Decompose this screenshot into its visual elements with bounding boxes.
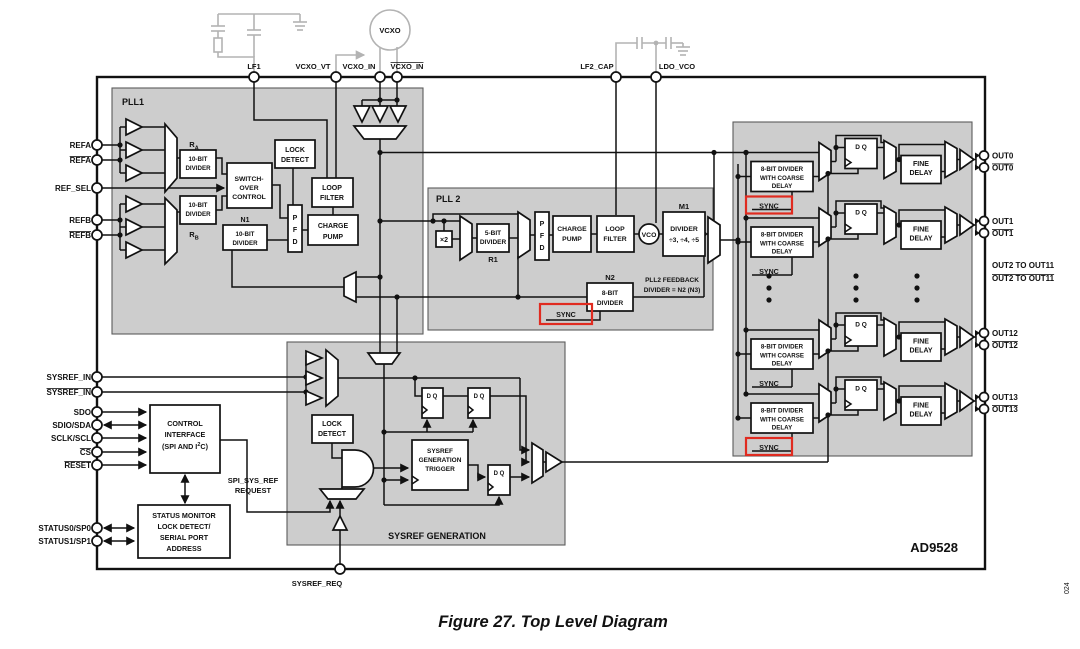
left-pin-labels: REFA REFA REF_SEL REFB REFB SYSREF_IN SY… xyxy=(38,141,91,546)
svg-text:D Q: D Q xyxy=(855,386,867,393)
x2-label: ×2 xyxy=(440,237,448,244)
vcxo-in-b-pin xyxy=(392,72,402,82)
svg-text:10-BIT: 10-BIT xyxy=(189,202,208,209)
svg-text:DELAY: DELAY xyxy=(909,412,932,419)
pll1-title: PLL1 xyxy=(122,97,144,107)
refb-b-pin xyxy=(92,230,102,240)
vcxo-vt-pin xyxy=(331,72,341,82)
svg-text:SPI_SYS_REF: SPI_SYS_REF xyxy=(228,476,279,485)
svg-text:DETECT: DETECT xyxy=(318,431,347,438)
svg-text:OVER: OVER xyxy=(239,185,258,192)
vcxo-mux xyxy=(354,126,406,139)
refb-pin xyxy=(92,215,102,225)
rb-divider-box xyxy=(180,196,216,224)
spi-i2c-line: (SPI AND I2C) xyxy=(162,442,209,451)
svg-text:DELAY: DELAY xyxy=(909,236,932,243)
svg-text:8-BIT: 8-BIT xyxy=(602,290,618,297)
figure-caption: Figure 27. Top Level Diagram xyxy=(438,613,668,631)
and-gate xyxy=(342,450,374,487)
m1-label: M1 xyxy=(679,202,689,211)
svg-text:F: F xyxy=(540,233,545,240)
svg-text:SWITCH-: SWITCH- xyxy=(234,176,263,183)
svg-text:FINE: FINE xyxy=(913,339,929,346)
n1-source-mux xyxy=(344,272,356,302)
sysref-req-pin xyxy=(335,564,345,574)
svg-text:8-BIT DIVIDER: 8-BIT DIVIDER xyxy=(761,344,804,351)
external-ldo-caps xyxy=(616,37,690,77)
reset-label: RESET xyxy=(64,461,91,470)
lf1-pin xyxy=(249,72,259,82)
svg-text:DELAY: DELAY xyxy=(772,425,793,432)
svg-text:DIVIDER: DIVIDER xyxy=(185,211,211,218)
sysref-in-label: SYSREF_IN xyxy=(47,373,92,382)
vcxo-in-b-label: VCXO_IN xyxy=(391,62,424,71)
svg-text:DIVIDER: DIVIDER xyxy=(597,300,624,307)
status1-pin xyxy=(92,536,102,546)
pll2-sync-label: SYNC xyxy=(556,312,575,319)
vcxo-vt-label: VCXO_VT xyxy=(295,62,330,71)
ldo-vco-pin xyxy=(651,72,661,82)
svg-text:WITH COARSE: WITH COARSE xyxy=(760,241,804,248)
sysref-output-mux xyxy=(532,443,543,483)
out13-label: OUT13 xyxy=(992,393,1018,402)
lf1-label: LF1 xyxy=(247,62,260,71)
refb-b-label: REFB xyxy=(69,231,91,240)
svg-text:CONTROL: CONTROL xyxy=(232,194,266,201)
sdo-pin xyxy=(92,407,102,417)
status0-label: STATUS0/SP0 xyxy=(38,524,91,533)
sclk-pin xyxy=(92,433,102,443)
svg-text:SYSREF: SYSREF xyxy=(427,448,453,455)
refa-b-pin xyxy=(92,155,102,165)
svg-text:DELAY: DELAY xyxy=(772,249,793,256)
svg-text:D: D xyxy=(292,239,297,246)
svg-text:8-BIT DIVIDER: 8-BIT DIVIDER xyxy=(761,232,804,239)
pll2-title: PLL 2 xyxy=(436,194,460,204)
svg-text:LOOP: LOOP xyxy=(322,185,342,192)
refa-label: REFA xyxy=(70,141,92,150)
pll1-loop-filter-box xyxy=(312,178,353,207)
svg-text:WITH COARSE: WITH COARSE xyxy=(760,175,804,182)
svg-text:FINE: FINE xyxy=(913,227,929,234)
control-interface-box xyxy=(150,405,220,473)
sclk-label: SCLK/SCL xyxy=(51,434,91,443)
pfd-input-mux xyxy=(518,212,530,258)
svg-text:STATUS MONITOR: STATUS MONITOR xyxy=(152,511,216,520)
sysref-input-mux xyxy=(326,350,338,406)
svg-text:D Q: D Q xyxy=(855,322,867,329)
out0-b-label: OUT0 xyxy=(992,164,1014,173)
svg-text:D Q: D Q xyxy=(427,394,438,400)
svg-text:DIVIDER: DIVIDER xyxy=(185,165,211,172)
svg-text:10-BIT: 10-BIT xyxy=(189,156,208,163)
out2-11-b-label: OUT2 TO OUT11 xyxy=(992,274,1055,283)
out0-label: OUT0 xyxy=(992,152,1014,161)
svg-text:TRIGGER: TRIGGER xyxy=(425,466,455,473)
svg-text:DIVIDER: DIVIDER xyxy=(670,226,698,233)
svg-text:ADDRESS: ADDRESS xyxy=(166,544,201,553)
n1-label: N1 xyxy=(241,217,250,224)
svg-text:CHARGE: CHARGE xyxy=(557,226,587,233)
svg-text:PUMP: PUMP xyxy=(562,236,582,243)
svg-text:DELAY: DELAY xyxy=(772,361,793,368)
svg-text:DIVIDER: DIVIDER xyxy=(232,240,258,247)
svg-text:8-BIT DIVIDER: 8-BIT DIVIDER xyxy=(761,408,804,415)
svg-text:FINE: FINE xyxy=(913,403,929,410)
figure-watermark: 024 xyxy=(1064,582,1071,594)
svg-text:D Q: D Q xyxy=(474,394,485,400)
chip-name-label: AD9528 xyxy=(910,540,958,555)
lf2-cap-pin xyxy=(611,72,621,82)
svg-text:SERIAL PORT: SERIAL PORT xyxy=(160,533,209,542)
n2-label: N2 xyxy=(605,273,615,282)
vcxo-in-pin xyxy=(375,72,385,82)
svg-text:SYNC: SYNC xyxy=(759,381,778,388)
refa-pin xyxy=(92,140,102,150)
lf2-cap-label: LF2_CAP xyxy=(580,62,613,71)
pll2-region xyxy=(428,188,713,330)
svg-text:8-BIT DIVIDER: 8-BIT DIVIDER xyxy=(761,166,804,173)
cs-pin xyxy=(92,447,102,457)
svg-text:FILTER: FILTER xyxy=(603,236,626,243)
refb-label: REFB xyxy=(69,216,91,225)
sysref-dq2 xyxy=(468,388,490,418)
vco-label: VCO xyxy=(642,232,657,239)
svg-text:LOCK: LOCK xyxy=(322,421,342,428)
ref-sel-label: REF_SEL xyxy=(55,184,91,193)
sysref-generation-title: SYSREF GENERATION xyxy=(388,531,486,541)
svg-text:DIVIDER = N2 (N3): DIVIDER = N2 (N3) xyxy=(644,287,701,294)
r1-input-mux xyxy=(460,216,472,260)
out13-b-label: OUT13 xyxy=(992,405,1018,414)
pll2-loop-filter-box xyxy=(597,216,634,252)
svg-text:GENERATION: GENERATION xyxy=(419,457,462,464)
status0-pin xyxy=(92,523,102,533)
out12-b-label: OUT12 xyxy=(992,341,1018,350)
svg-text:WITH COARSE: WITH COARSE xyxy=(760,353,804,360)
svg-text:D: D xyxy=(539,245,544,252)
svg-text:CONTROL: CONTROL xyxy=(167,419,203,428)
pll2-charge-pump-box xyxy=(553,216,591,252)
refa-b-label: REFA xyxy=(70,156,92,165)
ldo-vco-label: LDO_VCO xyxy=(659,62,695,71)
svg-text:FILTER: FILTER xyxy=(320,195,344,202)
svg-text:DELAY: DELAY xyxy=(909,170,932,177)
svg-text:5-BIT: 5-BIT xyxy=(485,230,501,237)
svg-text:DIVIDER: DIVIDER xyxy=(480,239,507,246)
svg-text:P: P xyxy=(293,215,298,222)
vcxo-label: VCXO xyxy=(379,26,400,35)
pll2-output-mux xyxy=(708,217,720,263)
svg-text:D Q: D Q xyxy=(494,471,505,477)
svg-text:DELAY: DELAY xyxy=(909,348,932,355)
sysref-in-pin xyxy=(92,372,102,382)
ref-sel-pin xyxy=(92,183,102,193)
request-select-mux xyxy=(320,489,364,499)
svg-text:DETECT: DETECT xyxy=(281,157,310,164)
svg-text:PLL2 FEEDBACK: PLL2 FEEDBACK xyxy=(645,277,699,284)
top-level-diagram: VCXO xyxy=(0,0,1080,649)
refb-mux xyxy=(165,198,177,264)
out1-b-label: OUT1 xyxy=(992,229,1014,238)
sysref-in-b-label: SYSREF_IN xyxy=(47,388,92,397)
svg-text:SYNC: SYNC xyxy=(759,204,778,211)
sysref-req-label: SYSREF_REQ xyxy=(292,579,343,588)
svg-text:DELAY: DELAY xyxy=(772,183,793,190)
vcxo-in-label: VCXO_IN xyxy=(343,62,376,71)
svg-text:D Q: D Q xyxy=(855,210,867,217)
cs-label: CS xyxy=(80,448,92,457)
svg-text:LOOP: LOOP xyxy=(605,226,625,233)
sysref-lock-detect-box xyxy=(312,415,353,443)
r1-label: R1 xyxy=(488,255,498,264)
svg-text:CHARGE: CHARGE xyxy=(318,223,349,230)
svg-text:PUMP: PUMP xyxy=(323,234,344,241)
svg-text:LOCK: LOCK xyxy=(285,147,305,154)
svg-text:FINE: FINE xyxy=(913,161,929,168)
svg-text:P: P xyxy=(540,221,545,228)
svg-text:D Q: D Q xyxy=(855,144,867,151)
sdio-pin xyxy=(92,420,102,430)
datasheet-page: VCXO xyxy=(0,0,1080,649)
sysref-dq3 xyxy=(488,465,510,495)
svg-text:SYNC: SYNC xyxy=(759,269,778,276)
sysref-in-b-pin xyxy=(92,387,102,397)
reset-pin xyxy=(92,460,102,470)
svg-text:÷3, ÷4, ÷5: ÷3, ÷4, ÷5 xyxy=(669,237,699,244)
svg-text:10-BIT: 10-BIT xyxy=(236,231,255,238)
svg-text:REQUEST: REQUEST xyxy=(235,486,272,495)
svg-text:F: F xyxy=(293,227,298,234)
svg-text:INTERFACE: INTERFACE xyxy=(165,430,206,439)
sdo-label: SDO xyxy=(74,408,91,417)
sysref-dq1 xyxy=(422,388,443,418)
out1-label: OUT1 xyxy=(992,217,1014,226)
sdio-label: SDIO/SDA xyxy=(52,421,91,430)
r1-divider-box xyxy=(477,224,509,252)
svg-text:LOCK DETECT/: LOCK DETECT/ xyxy=(157,522,210,531)
status1-label: STATUS1/SP1 xyxy=(38,537,91,546)
out12-label: OUT12 xyxy=(992,329,1018,338)
m1-divider-box xyxy=(663,212,705,256)
svg-text:WITH COARSE: WITH COARSE xyxy=(760,417,804,424)
out2-11-label: OUT2 TO OUT11 xyxy=(992,261,1055,270)
ra-divider-box xyxy=(180,150,216,178)
svg-text:SYNC: SYNC xyxy=(759,445,778,452)
